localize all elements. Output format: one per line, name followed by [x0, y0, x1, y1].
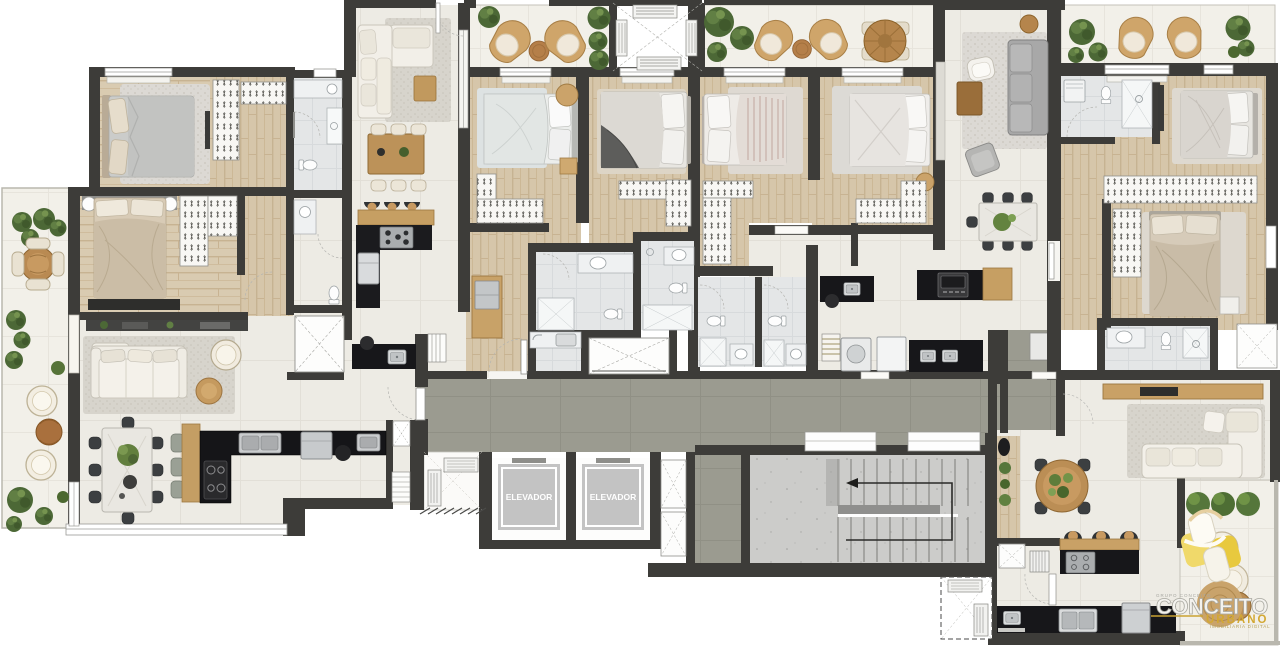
svg-text:ELEVADOR: ELEVADOR — [590, 492, 637, 502]
svg-text:ELEVADOR: ELEVADOR — [506, 492, 553, 502]
svg-text:IMOBILIARIA DIGITAL: IMOBILIARIA DIGITAL — [1210, 624, 1270, 629]
